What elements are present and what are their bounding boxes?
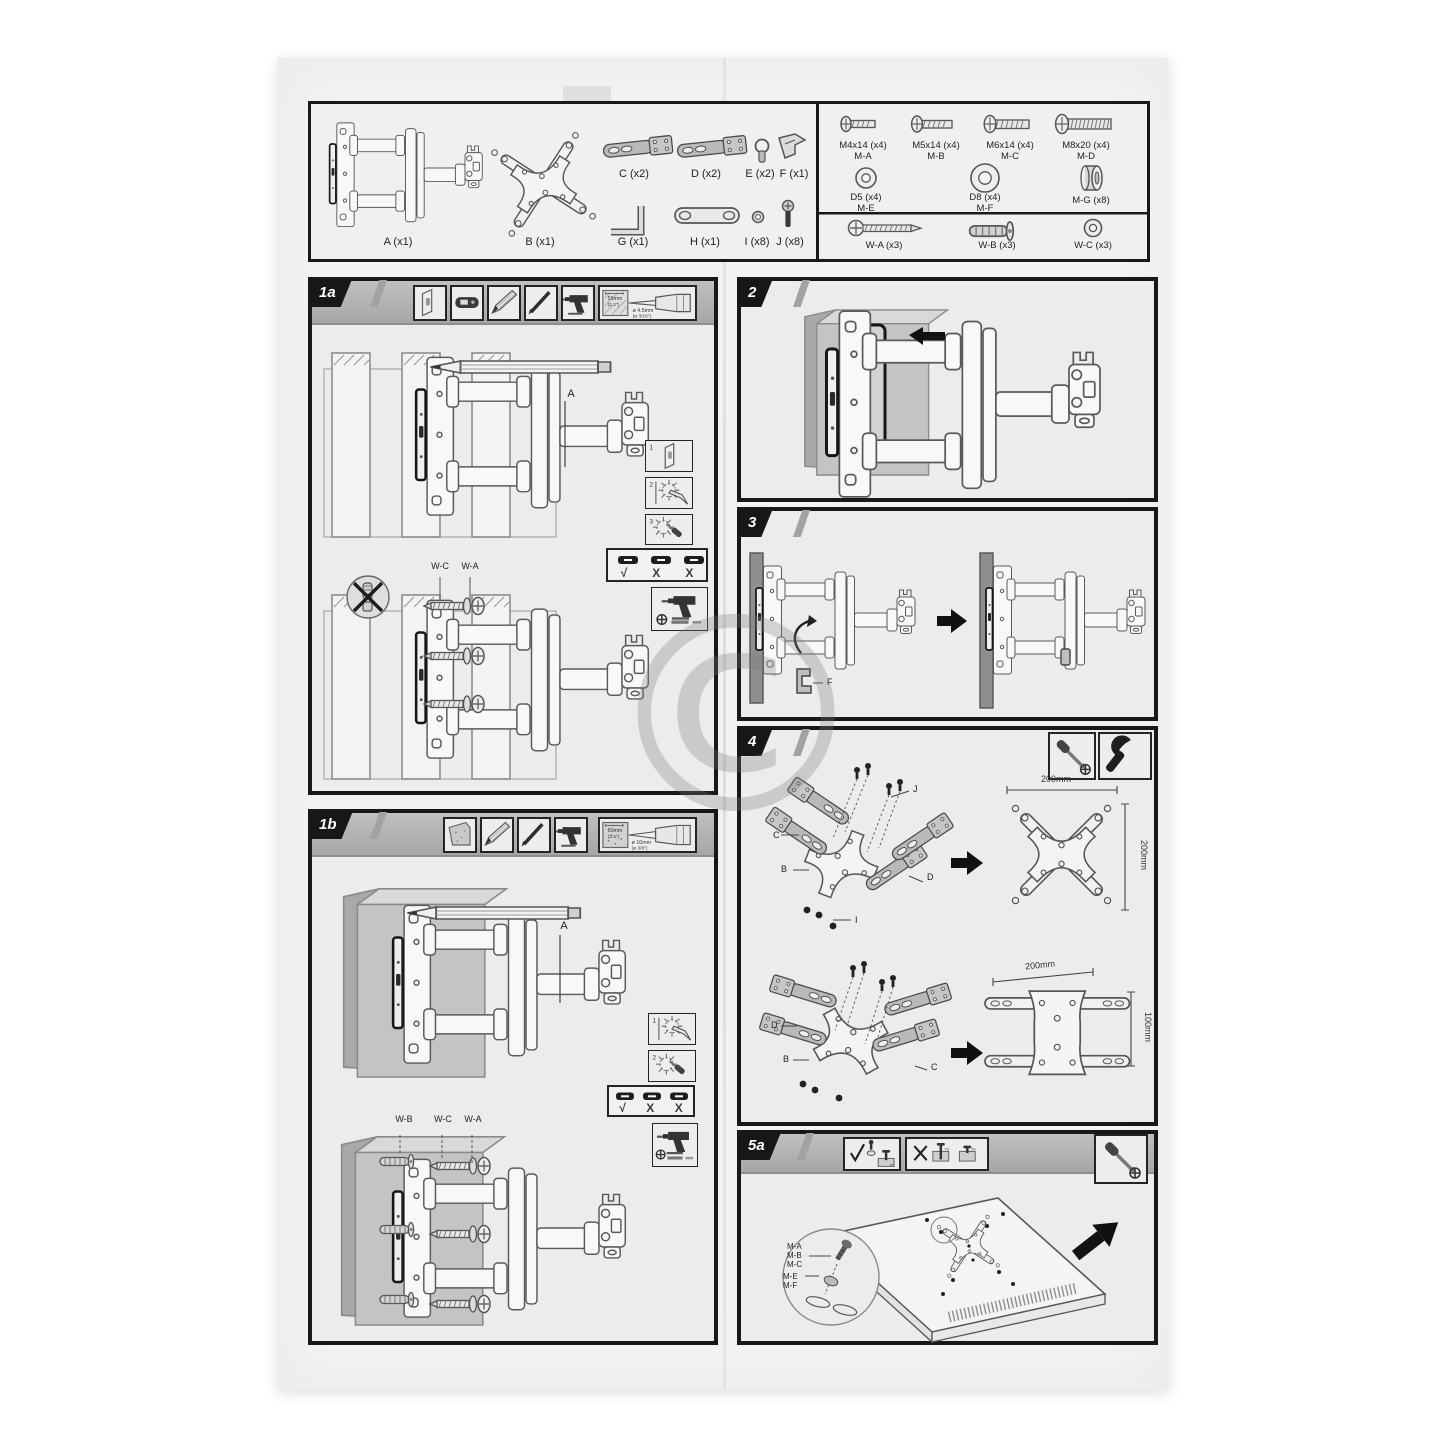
drill-note-box — [652, 1123, 698, 1167]
screw-mc-drawing — [984, 116, 1029, 133]
inset-step-3: 3 — [645, 514, 693, 545]
label-mb: M-B — [787, 1251, 802, 1260]
diagram-4 — [741, 730, 1154, 1122]
screwdriver-icon — [1048, 732, 1096, 780]
part-label-j: J (x8) — [776, 236, 804, 248]
section-4: 4 — [737, 726, 1158, 1126]
marker-icon — [524, 285, 558, 321]
diagram-1a-top — [318, 333, 648, 561]
screw-mb-drawing — [912, 116, 952, 132]
label-wa: W-A — [461, 561, 478, 571]
part-label-d: D (x2) — [691, 168, 721, 180]
drill-dia-label: ø 10mm — [632, 840, 652, 846]
washer-wc-drawing — [1085, 220, 1102, 237]
part-label-c: C (x2) — [619, 168, 649, 180]
paper-sheet: TV WALL MOUNT TO TV LCD/LED © — [278, 58, 1168, 1390]
concrete-wall-icon — [443, 817, 477, 853]
spacer-mg-drawing — [1081, 166, 1102, 190]
washer-me-drawing — [856, 168, 876, 188]
screw-length-guide: √ X X — [607, 1085, 695, 1117]
dim-100mm-side: 100mm — [1143, 1012, 1153, 1042]
part-label-a: A (x1) — [384, 236, 413, 248]
pencil-icon — [487, 285, 521, 321]
nuts-i — [804, 907, 837, 930]
cross-mark: X — [685, 567, 693, 579]
cross-mark: X — [675, 1102, 683, 1114]
inset-step-1: 1 — [648, 1013, 696, 1045]
screw-md-drawing — [1056, 115, 1111, 134]
label-b-lower: B — [783, 1054, 789, 1064]
drill-depth-label: 60mm — [608, 828, 623, 834]
drill-dia-alt-label: (ø 3/16") — [633, 313, 652, 319]
hardware-divider — [816, 104, 819, 259]
label-f: F — [827, 677, 833, 687]
screws-j — [854, 763, 903, 795]
part-e-drawing — [756, 140, 769, 163]
no-anchor-icon — [347, 576, 389, 618]
part-b-drawing — [491, 132, 596, 237]
part-j-drawing — [783, 201, 794, 228]
label-wb: W-B — [395, 1114, 412, 1124]
label-wa: W-A — [464, 1114, 481, 1124]
part-d-drawing — [677, 135, 747, 160]
clip-f-installed — [1061, 649, 1070, 665]
screwdriver-icon — [1094, 1134, 1148, 1184]
hw-label-wa: W-A (x3) — [836, 240, 932, 251]
stud-finder-icon — [450, 285, 484, 321]
screw-ma-drawing — [841, 117, 875, 132]
cross-mark: X — [646, 1102, 654, 1114]
part-a-drawing — [330, 123, 483, 227]
drill-depth-alt-label: (2.2") — [608, 302, 620, 308]
inset-number: 3 — [649, 518, 653, 525]
part-h-drawing — [675, 208, 739, 223]
diagram-3 — [741, 511, 1154, 717]
label-wc: W-C — [434, 1114, 452, 1124]
inset-number: 2 — [649, 481, 653, 488]
parts-box: A (x1) B (x1) C (x2) D (x2) E (x2) F (x1… — [308, 101, 1150, 262]
drill-icon — [561, 285, 595, 321]
hw-label-mf: D8 (x4)M-F — [937, 192, 1033, 214]
drill-spec-icon: 60mm (2.4") ø 10mm (ø 3/8") — [598, 817, 697, 853]
dim-200mm-top: 200mm — [1041, 774, 1071, 784]
part-f-drawing — [779, 134, 805, 158]
wrench-icon — [1098, 732, 1152, 780]
part-label-b: B (x1) — [525, 236, 554, 248]
dim-200mm-side: 200mm — [1139, 840, 1149, 870]
hw-label-me: D5 (x4)M-E — [818, 192, 914, 214]
pencil-icon — [480, 817, 514, 853]
hw-label-wb: W-B (x3) — [949, 240, 1045, 251]
hw-label-md: M8x20 (x4)M-D — [1038, 140, 1134, 162]
part-i-drawing — [753, 212, 764, 223]
cross-mark: X — [652, 567, 660, 579]
screw-length-guide: √ X X — [606, 548, 708, 582]
tv-label: TV — [944, 1146, 949, 1151]
label-j-upper: J — [913, 784, 918, 794]
marker-icon — [517, 817, 551, 853]
label-c-lower: C — [931, 1062, 938, 1072]
drill-icon — [554, 817, 588, 853]
label-wc: W-C — [431, 561, 449, 571]
inset-step-2: 2 — [645, 477, 693, 509]
inset-step-1: 1 — [645, 440, 693, 472]
tv-label: TV — [890, 1162, 895, 1167]
drill-depth-alt-label: (2.4") — [608, 834, 620, 840]
section-1a: 1a 55mm (2.2") ø 4.5mm (ø 3/16") — [308, 277, 718, 795]
label-mf: M-F — [783, 1281, 797, 1290]
washer-mf-drawing — [971, 164, 999, 192]
label-c-upper: C — [773, 830, 780, 840]
check-mark: √ — [619, 1102, 626, 1114]
label-mc: M-C — [787, 1260, 802, 1269]
drill-dia-label: ø 4.5mm — [633, 308, 654, 314]
label-d-upper: D — [927, 872, 934, 882]
diagram-1b-bottom — [320, 1125, 650, 1341]
exploded-200x100 — [759, 961, 1135, 1101]
label-i-upper: I — [855, 915, 858, 925]
section-1b: 1b 60mm (2.4") ø 10mm (ø 3/8") — [308, 809, 718, 1345]
label-me: M-E — [783, 1272, 798, 1281]
part-c-drawing — [603, 135, 673, 160]
drill-depth-label: 55mm — [608, 296, 623, 302]
parts-art — [311, 104, 1147, 259]
inset-number: 2 — [652, 1054, 656, 1061]
label-d-lower: D — [771, 1020, 778, 1030]
wrong-screw-guide: TV TV — [905, 1137, 989, 1171]
correct-screw-guide: TV — [843, 1137, 901, 1171]
screw-wa-drawing — [849, 221, 922, 236]
point-label-a: A — [560, 920, 567, 932]
section-2: 2 — [737, 277, 1158, 502]
exploded-200x200 — [765, 763, 1129, 929]
section-3: 3 F — [737, 507, 1158, 721]
drill-note-box — [651, 587, 708, 631]
part-label-i: I (x8) — [744, 236, 769, 248]
label-b-upper: B — [781, 864, 787, 874]
diagram-1a-bottom — [318, 571, 648, 789]
inset-number: 1 — [652, 1017, 656, 1024]
hw-label-wc: W-C (x3) — [1045, 240, 1141, 251]
diagram-1b-top — [320, 873, 650, 1105]
part-g-drawing — [611, 206, 641, 232]
insert-arrow — [1067, 1211, 1127, 1266]
inset-step-2: 2 — [648, 1050, 696, 1082]
point-label-a: A — [567, 388, 574, 400]
wall-stud-icon — [413, 285, 447, 321]
part-label-h: H (x1) — [690, 236, 720, 248]
hw-label-mg: M-G (x8) — [1043, 195, 1139, 206]
part-label-e: E (x2) — [745, 168, 774, 180]
inset-number: 1 — [649, 444, 653, 451]
drill-spec-icon: 55mm (2.2") ø 4.5mm (ø 3/16") — [598, 285, 697, 321]
clip-f-drawing — [797, 669, 811, 693]
tv-label: TV — [971, 1146, 976, 1151]
anchor-wb-drawing — [970, 222, 1014, 240]
label-ma: M-A — [787, 1242, 802, 1251]
section-5a: 5a TV TV TV — [737, 1130, 1158, 1345]
part-label-f: F (x1) — [780, 168, 809, 180]
check-mark: √ — [621, 567, 628, 579]
drill-dia-alt-label: (ø 3/8") — [632, 845, 648, 851]
next-arrow — [937, 609, 967, 633]
part-label-g: G (x1) — [618, 236, 649, 248]
diagram-2 — [741, 281, 1154, 498]
